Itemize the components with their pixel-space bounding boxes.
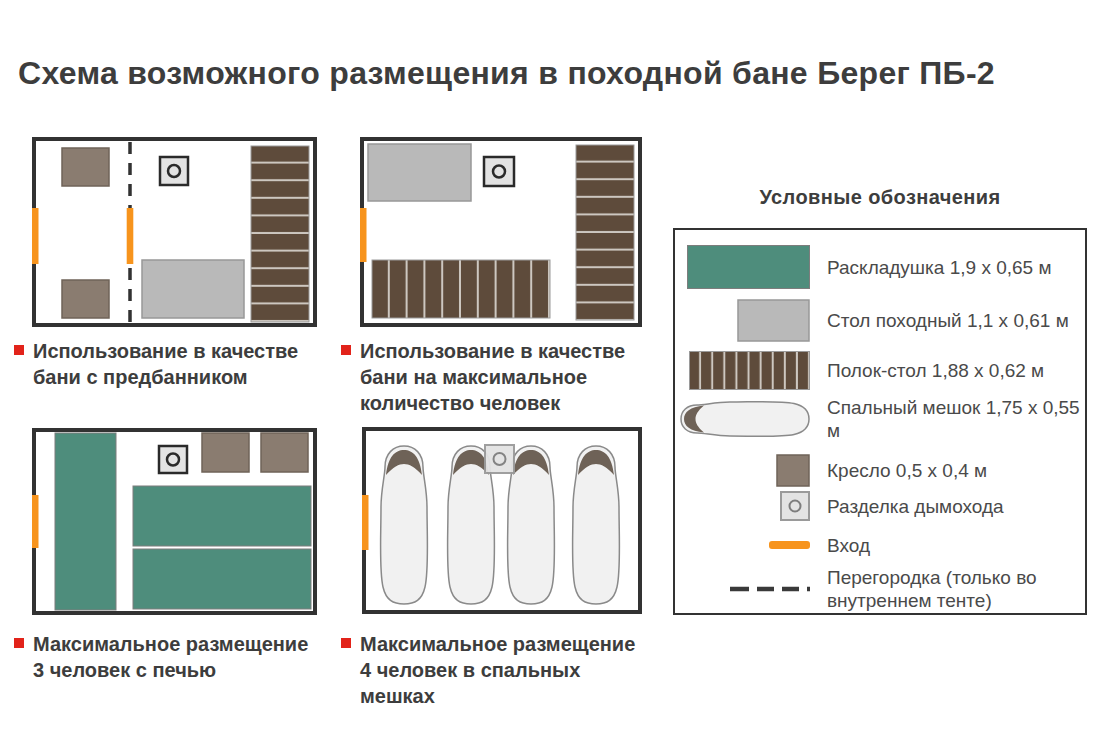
cot-icon: [133, 486, 311, 546]
red-square-bullet: [14, 638, 24, 648]
cot-swatch: [675, 245, 810, 289]
entrance-icon: [127, 208, 134, 264]
chimney-outlet-icon: [675, 491, 810, 521]
entrance-icon: [32, 495, 39, 548]
legend-item-camp-table: Стол походный 1,1 х 0,61 м: [675, 296, 1085, 344]
floor-plan-bath-with-dressing-room: [32, 137, 317, 331]
sleeping-bag-icon: [675, 399, 810, 439]
legend-box: Раскладушка 1,9 х 0,65 м Стол походный 1…: [673, 228, 1087, 615]
legend-label: Спальный мешок 1,75 х 0,55 м: [827, 396, 1085, 442]
chimney-outlet-icon: [159, 446, 187, 473]
chimney-outlet-icon: [484, 157, 514, 186]
legend-item-sleeping-bag: Спальный мешок 1,75 х 0,55 м: [675, 396, 1085, 442]
legend-label: Раскладушка 1,9 х 0,65 м: [827, 256, 1051, 279]
cot-icon: [133, 549, 311, 609]
red-square-bullet: [341, 638, 351, 648]
entrance-icon: [362, 495, 369, 550]
legend-item-chimney-outlet: Разделка дымохода: [675, 488, 1085, 524]
infographic-page: Схема возможного размещения в походной б…: [0, 0, 1100, 733]
floor-plan-drawing: [360, 137, 642, 327]
legend-label: Вход: [827, 534, 870, 557]
armchair-icon: [62, 148, 109, 186]
legend-label: Перегородка (только во внутреннем тенте): [827, 566, 1037, 612]
sleeping-bag-icon: [573, 446, 620, 604]
sleeping-bag-icon: [381, 446, 428, 604]
chimney-outlet-icon: [160, 157, 188, 185]
legend-label: Разделка дымохода: [827, 495, 1004, 518]
legend-title: Условные обозначения: [673, 186, 1087, 209]
legend-label: Стол походный 1,1 х 0,61 м: [827, 309, 1069, 332]
figure-caption: Максимальное размещение 3 человек с печь…: [14, 631, 314, 683]
armchair-icon: [202, 433, 249, 472]
caption-text: Использование в качестве бани на максима…: [360, 338, 625, 416]
caption-text: Использование в качестве бани с предбанн…: [33, 338, 298, 390]
entrance-icon: [32, 208, 39, 264]
plank-table-icon: [251, 146, 309, 322]
floor-plan-drawing: [32, 428, 317, 615]
legend-item-entrance: Вход: [675, 530, 1085, 560]
armchair-icon: [62, 280, 109, 318]
floor-plan-bath-max-people: [360, 137, 642, 331]
chimney-outlet-icon: [485, 445, 514, 473]
caption-text: Максимальное размещение 4 человек в спал…: [360, 631, 651, 709]
legend-item-partition: Перегородка (только во внутреннем тенте): [675, 560, 1085, 618]
camp-table-icon: [142, 260, 244, 318]
floor-plan-max-3-with-stove: [32, 428, 317, 619]
page-title: Схема возможного размещения в походной б…: [18, 56, 1093, 91]
figure-caption: Использование в качестве бани с предбанн…: [14, 338, 314, 390]
legend-item-armchair: Кресло 0,5 х 0,4 м: [675, 452, 1085, 488]
camp-table-icon: [368, 144, 471, 201]
partition-line: [675, 586, 810, 592]
camp-table-swatch: [675, 299, 810, 342]
figure-caption: Максимальное размещение 4 человек в спал…: [341, 631, 651, 709]
caption-text: Максимальное размещение 3 человек с печь…: [33, 631, 308, 683]
plank-table-swatch: [675, 351, 810, 390]
floor-plan-drawing: [362, 427, 642, 614]
floor-plan-max-4-sleeping-bags: [362, 427, 642, 618]
entrance-line: [675, 541, 810, 549]
plank-table-icon: [372, 260, 550, 318]
plank-table-icon: [576, 145, 634, 320]
legend-label: Кресло 0,5 х 0,4 м: [827, 459, 987, 482]
entrance-icon: [360, 208, 367, 262]
armchair-icon: [261, 433, 308, 472]
floor-plan-drawing: [32, 137, 317, 327]
red-square-bullet: [341, 345, 351, 355]
legend-label: Полок-стол 1,88 х 0,62 м: [827, 359, 1044, 382]
legend-item-plank-table: Полок-стол 1,88 х 0,62 м: [675, 347, 1085, 393]
armchair-swatch: [675, 454, 810, 487]
red-square-bullet: [14, 345, 24, 355]
cot-icon: [55, 433, 116, 610]
legend-item-cot: Раскладушка 1,9 х 0,65 м: [675, 243, 1085, 291]
figure-caption: Использование в качестве бани на максима…: [341, 338, 641, 416]
